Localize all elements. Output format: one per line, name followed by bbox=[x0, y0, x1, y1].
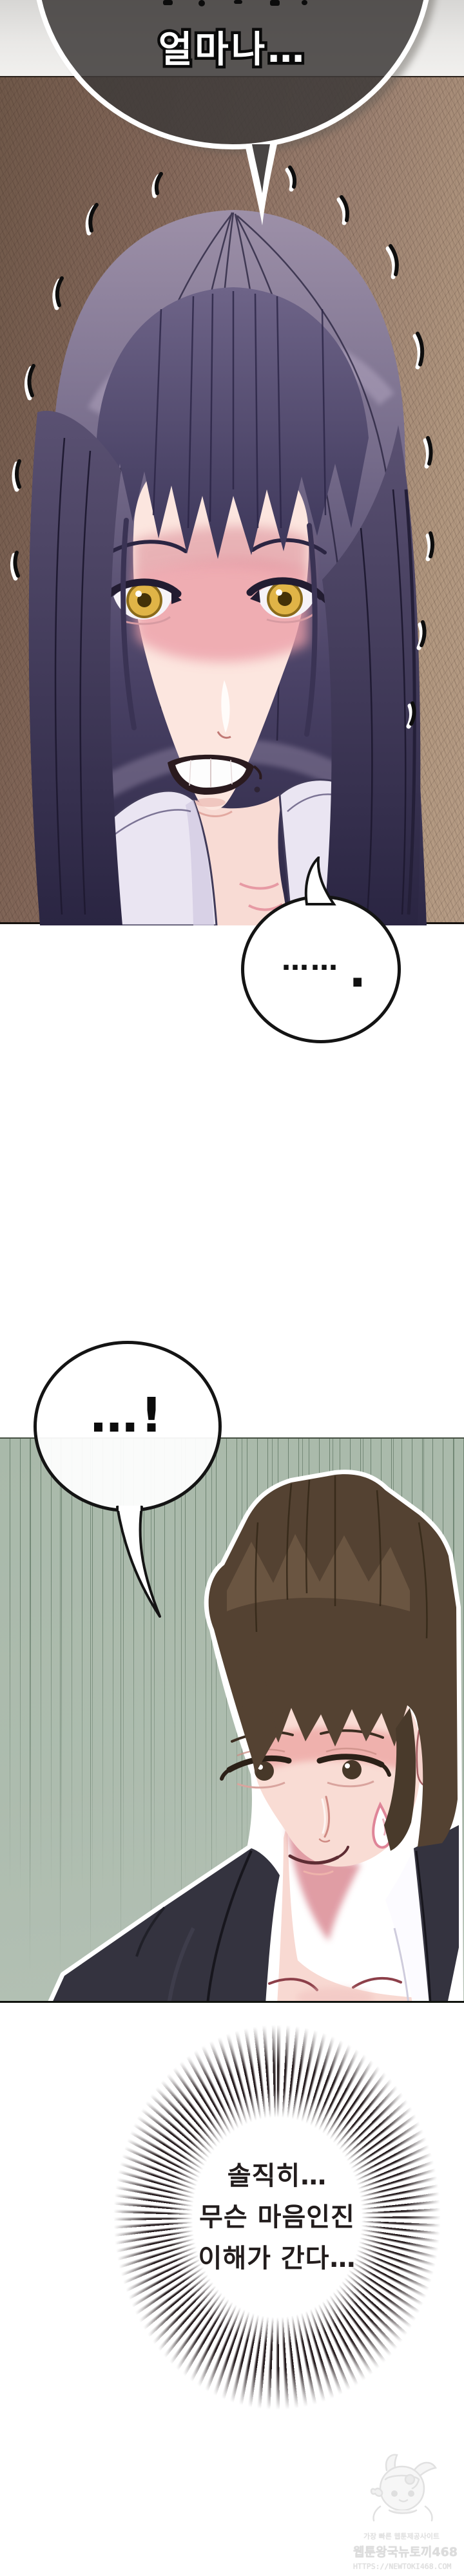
woman-illustration bbox=[0, 77, 464, 925]
burst-line: 솔직히… bbox=[108, 2155, 446, 2197]
watermark-url: HTTPS://NEWTOKI468.COM bbox=[353, 2562, 450, 2571]
speech-bubble-dark-tail bbox=[244, 144, 278, 228]
burst-line: 이해가 간다… bbox=[108, 2238, 446, 2279]
period-text: . bbox=[349, 947, 366, 994]
speech-bubble-dots-tail bbox=[302, 857, 340, 905]
exclaim-text: …! bbox=[37, 1392, 218, 1439]
webtoon-page: 얼마나… …… . bbox=[0, 0, 464, 2576]
speech-bubble-exclaim-tail bbox=[108, 1506, 170, 1620]
panel-man bbox=[0, 1437, 464, 2003]
watermark-sitename: 웹툰왕국뉴토끼468 bbox=[353, 2543, 450, 2560]
speech-bubble-exclaim: …! bbox=[34, 1341, 222, 1512]
burst-line: 무슨 마음인진 bbox=[108, 2197, 446, 2238]
dots-text: …… bbox=[282, 947, 340, 974]
burst-text: 솔직히… 무슨 마음인진 이해가 간다… bbox=[108, 2155, 446, 2279]
site-watermark: 가장 빠른 웹툰제공사이트 웹툰왕국뉴토끼468 HTTPS://NEWTOKI… bbox=[353, 2451, 450, 2571]
woman-mole bbox=[255, 787, 260, 793]
watermark-tagline: 가장 빠른 웹툰제공사이트 bbox=[353, 2531, 450, 2541]
burst-bubble: 솔직히… 무슨 마음인진 이해가 간다… bbox=[108, 2018, 446, 2417]
bunny-mascot-icon bbox=[353, 2451, 450, 2528]
man-illustration bbox=[0, 1439, 464, 2003]
speech-bubble-dark-text: 얼마나… bbox=[37, 32, 428, 68]
panel-woman bbox=[0, 76, 464, 924]
speech-bubble-dots: …… . bbox=[241, 895, 401, 1043]
bubble-text: 얼마나… bbox=[159, 32, 307, 68]
